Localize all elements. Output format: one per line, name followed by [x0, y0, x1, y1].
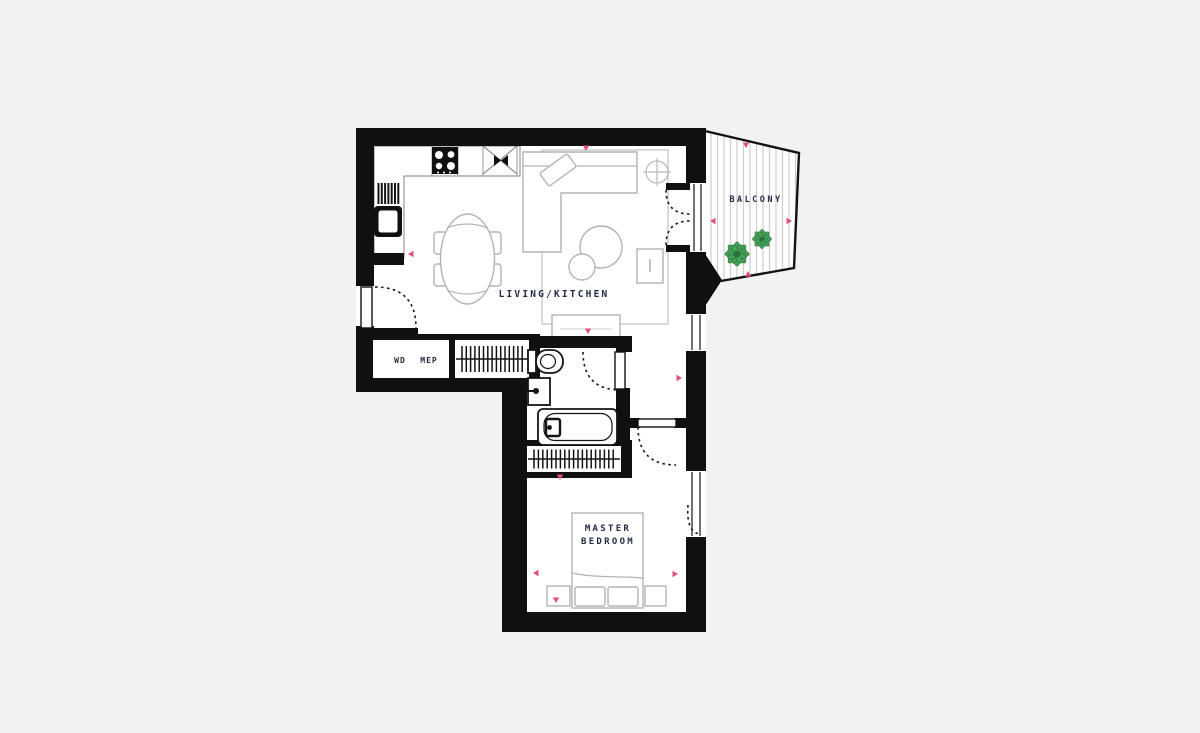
side-table — [637, 249, 663, 283]
coffee-table-small — [569, 254, 595, 280]
nightstand-left — [547, 586, 570, 606]
label-wd: WD — [394, 356, 406, 365]
window-living — [686, 314, 706, 351]
label-mep: MEP — [420, 356, 437, 365]
wall-bath-right-stub — [616, 336, 632, 352]
nightstand-right — [645, 586, 666, 606]
window-bedroom — [686, 471, 706, 537]
wardrobe-hall — [455, 340, 529, 378]
plant-icon — [725, 242, 749, 266]
balcony-floor — [705, 131, 799, 281]
label-master-line1: MASTER — [585, 524, 631, 534]
wardrobe-bedroom — [527, 446, 621, 472]
bathtub-icon — [538, 409, 617, 445]
bed-pillow — [575, 587, 605, 606]
label-balcony: BALCONY — [729, 195, 782, 205]
floor-plan-canvas: LIVING/KITCHEN BALCONY MASTER BEDROOM WD… — [0, 0, 1200, 733]
wall-lower-left — [502, 378, 527, 632]
wall-top — [356, 128, 706, 146]
label-master-line2: BEDROOM — [581, 537, 635, 547]
wall-counter-pier — [356, 253, 404, 265]
toilet-icon — [528, 350, 563, 373]
plant-icon — [752, 229, 771, 248]
drying-rack-icon — [379, 183, 399, 204]
stove-icon — [432, 147, 458, 174]
balcony — [705, 125, 799, 290]
bed-pillow — [608, 587, 638, 606]
floor-plan: LIVING/KITCHEN BALCONY MASTER BEDROOM WD… — [0, 0, 1200, 733]
tv-cabinet — [552, 315, 620, 338]
label-living-kitchen: LIVING/KITCHEN — [499, 289, 610, 300]
wall-bottom — [502, 612, 706, 632]
